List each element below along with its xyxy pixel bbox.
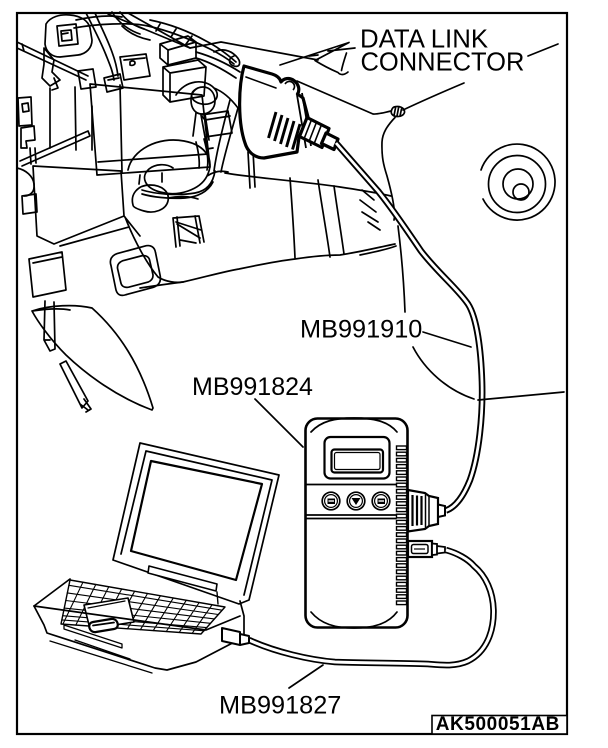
svg-text:MB991910: MB991910 <box>300 316 422 344</box>
svg-text:MB991827: MB991827 <box>219 692 341 720</box>
svg-text:MB991824: MB991824 <box>192 373 313 401</box>
svg-text:CONNECTOR: CONNECTOR <box>361 49 525 77</box>
svg-text:AK500051AB: AK500051AB <box>436 714 560 735</box>
